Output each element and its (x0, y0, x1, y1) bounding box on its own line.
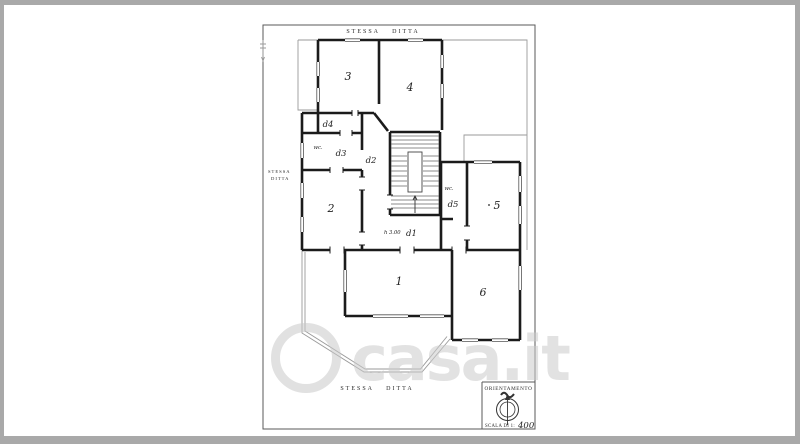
room-2-label: 2 (327, 202, 335, 215)
floorplan-image: STESSA DITTA STESSA DITTA STESSA DITTA 3… (0, 0, 800, 444)
stair-landing (408, 152, 422, 192)
room-5-label: 5 (494, 199, 501, 212)
staircase (391, 136, 439, 213)
neighbor-label-bottom: STESSA DITTA (340, 386, 413, 392)
neighbor-label-top: STESSA DITTA (346, 29, 419, 35)
neighbor-label-left-1: STESSA (268, 169, 291, 174)
wc-right-label: wc. (445, 186, 454, 192)
room-4-label: 4 (406, 81, 414, 94)
floor-plan-drawing: STESSA DITTA STESSA DITTA STESSA DITTA 3… (0, 0, 800, 444)
room-3-label: 3 (345, 70, 352, 83)
room-1-label: 1 (396, 275, 403, 288)
room-d2-label: d2 (366, 156, 377, 166)
stair-direction-arrow (413, 196, 417, 213)
room-d1-label: d1 (406, 229, 417, 239)
scale-value: 400 (517, 421, 535, 431)
room-d5-label: d5 (448, 200, 459, 210)
room-5-dot (488, 204, 490, 206)
room-d3-label: d3 (336, 149, 347, 159)
wc-left-label: wc. (314, 145, 323, 151)
legend-box: ORIENTAMENTO SCALA DI 1: 400 (482, 382, 535, 431)
room-6-label: 6 (480, 286, 487, 299)
veranda-outline (302, 250, 450, 372)
neighbor-outline (442, 40, 527, 250)
scale-label: SCALA DI 1: (485, 424, 515, 429)
room-d4-label: d4 (323, 120, 334, 130)
margin-mark (260, 40, 266, 61)
height-note: h 3.00 (384, 230, 401, 236)
neighbor-label-left-2: DITTA (271, 176, 289, 181)
terrace-outline (298, 40, 318, 110)
orientation-title: ORIENTAMENTO (485, 386, 533, 392)
